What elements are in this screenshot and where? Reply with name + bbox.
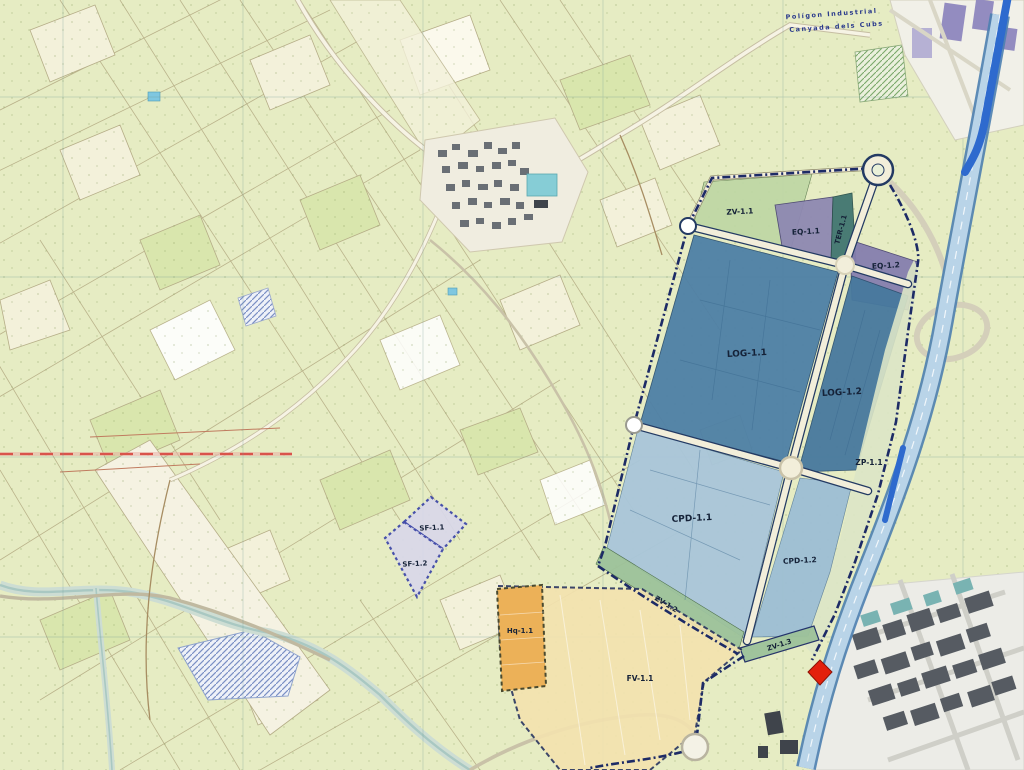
zone-label-CPD-1.2: CPD-1.2 [783, 555, 817, 566]
zone-label-EQ-1.1: EQ-1.1 [792, 226, 820, 236]
zone-label-SF-1.2: SF-1.2 [402, 559, 427, 568]
zone-label-Hq-1.1: Hq-1.1 [507, 627, 533, 635]
zone-label-EQ-1.2: EQ-1.2 [872, 260, 900, 270]
junction-circle-west-upper [680, 218, 696, 234]
hatched-parcel-northeast [855, 45, 908, 102]
zone-label-LOG-1.1: LOG-1.1 [727, 348, 768, 360]
village-pool [527, 174, 557, 196]
junction-east [836, 256, 854, 274]
roundabout-south [682, 734, 708, 760]
pond-tiny [448, 288, 457, 295]
zone-label-SF-1.1: SF-1.1 [419, 523, 444, 532]
zone-label-ZV-1.1: ZV-1.1 [726, 206, 754, 216]
map-canvas: Polígon Industrial Canyada dels Cubs [0, 0, 1024, 770]
junction-circle-west-lower [626, 417, 642, 433]
roundabout-central [780, 457, 802, 479]
zone-label-CPD-1.1: CPD-1.1 [671, 513, 712, 525]
zone-label-FV-1.1: FV-1.1 [627, 674, 654, 683]
map-viewport: Polígon Industrial Canyada dels Cubs [0, 0, 1024, 770]
pond-small [148, 92, 160, 101]
zone-label-ZP-1.1: ZP-1.1 [855, 458, 882, 467]
zone-Hq-1.1 [497, 585, 546, 691]
zone-label-LOG-1.2: LOG-1.2 [822, 387, 863, 399]
